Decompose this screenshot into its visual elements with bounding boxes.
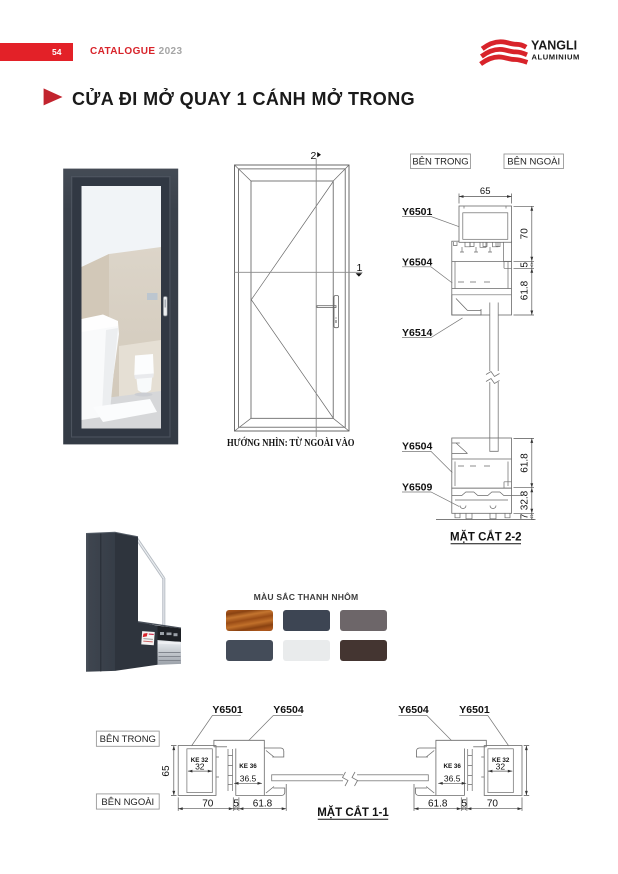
svg-text:32: 32 bbox=[195, 762, 205, 772]
svg-text:65: 65 bbox=[161, 765, 172, 777]
svg-text:MẶT CẮT 2-2: MẶT CẮT 2-2 bbox=[450, 531, 522, 544]
svg-text:65: 65 bbox=[480, 186, 491, 197]
svg-text:36.5: 36.5 bbox=[240, 774, 257, 784]
svg-text:Y6504: Y6504 bbox=[273, 704, 304, 716]
svg-text:70: 70 bbox=[520, 228, 531, 240]
svg-text:Y6504: Y6504 bbox=[398, 704, 429, 716]
svg-text:MẶT CẮT 1-1: MẶT CẮT 1-1 bbox=[317, 806, 389, 819]
svg-text:61.8: 61.8 bbox=[520, 453, 531, 473]
svg-text:70: 70 bbox=[487, 799, 499, 810]
svg-text:32.8: 32.8 bbox=[520, 490, 531, 510]
svg-text:BÊN NGOÀI: BÊN NGOÀI bbox=[101, 797, 154, 808]
svg-text:5: 5 bbox=[520, 262, 531, 268]
svg-text:Y6504: Y6504 bbox=[402, 441, 433, 453]
svg-text:32: 32 bbox=[496, 762, 506, 772]
svg-text:5: 5 bbox=[461, 799, 467, 810]
svg-text:61.8: 61.8 bbox=[253, 799, 273, 810]
svg-text:Y6501: Y6501 bbox=[459, 704, 490, 716]
svg-text:36.5: 36.5 bbox=[444, 774, 461, 784]
svg-text:Y6501: Y6501 bbox=[212, 704, 243, 716]
svg-text:5: 5 bbox=[233, 799, 239, 810]
svg-text:61.8: 61.8 bbox=[428, 799, 448, 810]
svg-text:KE 36: KE 36 bbox=[239, 763, 257, 770]
svg-text:HƯỚNG NHÌN: TỪ NGOÀI VÀO: HƯỚNG NHÌN: TỪ NGOÀI VÀO bbox=[227, 437, 355, 449]
svg-text:7: 7 bbox=[520, 513, 531, 519]
svg-text:BÊN TRONG: BÊN TRONG bbox=[100, 734, 156, 745]
svg-text:Y6509: Y6509 bbox=[402, 481, 433, 493]
svg-text:70: 70 bbox=[202, 799, 214, 810]
svg-text:KE 36: KE 36 bbox=[443, 763, 461, 770]
svg-text:BÊN TRONG: BÊN TRONG bbox=[412, 157, 468, 168]
svg-text:1: 1 bbox=[357, 262, 363, 274]
svg-text:BÊN NGOÀI: BÊN NGOÀI bbox=[507, 157, 560, 168]
svg-text:61.8: 61.8 bbox=[520, 280, 531, 300]
svg-text:2: 2 bbox=[311, 150, 317, 162]
